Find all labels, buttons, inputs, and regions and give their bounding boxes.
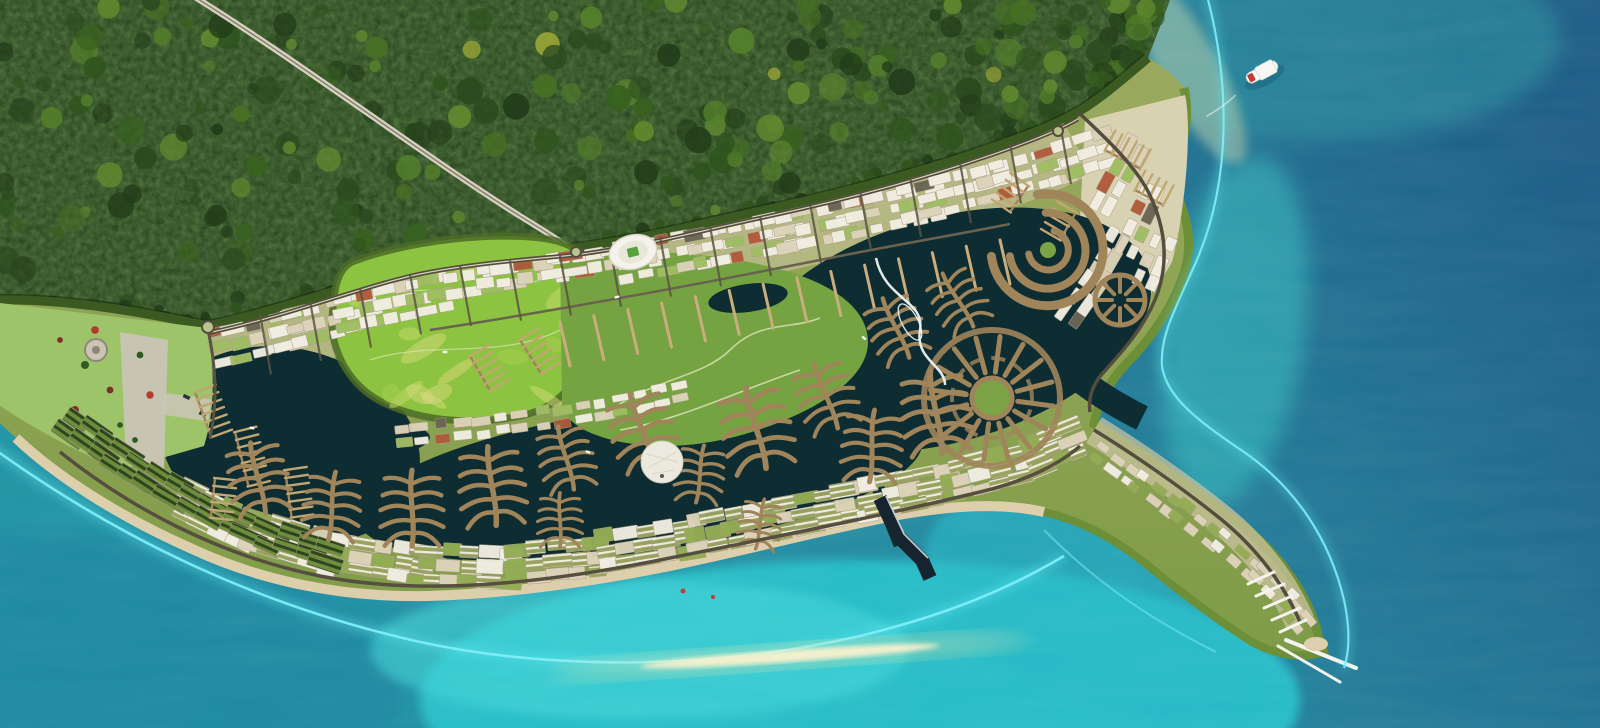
- tree: [190, 195, 201, 206]
- tree: [369, 60, 381, 72]
- tree: [13, 77, 24, 88]
- tree: [974, 104, 1002, 132]
- mid-block: [537, 422, 551, 431]
- tree: [93, 103, 113, 123]
- small-boat: [443, 351, 448, 353]
- tree: [1, 187, 15, 201]
- tree: [247, 83, 258, 94]
- tree: [433, 76, 448, 91]
- tree: [634, 160, 658, 184]
- tree: [940, 16, 961, 37]
- tree: [927, 90, 949, 112]
- tree: [578, 136, 602, 160]
- tree: [231, 178, 250, 197]
- tree: [975, 38, 992, 55]
- beachfront-block: [436, 559, 461, 572]
- beachfront-block: [653, 519, 674, 536]
- tree: [798, 5, 821, 28]
- north-block: [496, 277, 511, 288]
- tree: [176, 125, 193, 142]
- tree: [196, 103, 207, 114]
- mid-block: [536, 404, 551, 415]
- tree: [660, 176, 676, 192]
- tree: [9, 97, 34, 122]
- beachfront-block: [636, 524, 656, 538]
- mid-block: [414, 436, 429, 445]
- mid-block: [494, 412, 507, 422]
- tree: [811, 134, 831, 154]
- tree: [52, 227, 63, 238]
- tree: [366, 37, 388, 59]
- tree: [223, 248, 246, 271]
- tree: [1069, 35, 1083, 49]
- tree: [182, 18, 192, 28]
- tree: [204, 211, 220, 227]
- tree: [786, 12, 796, 22]
- north-block: [693, 255, 708, 268]
- tree: [178, 243, 198, 263]
- tree: [816, 38, 827, 49]
- tree: [929, 9, 941, 21]
- tree: [1040, 89, 1055, 104]
- mid-block: [435, 434, 450, 444]
- tree: [211, 124, 223, 136]
- tree: [710, 205, 720, 215]
- north-block: [445, 288, 463, 301]
- tree: [542, 45, 567, 70]
- mid-block: [496, 424, 511, 435]
- tree: [352, 238, 366, 252]
- tree: [283, 141, 296, 154]
- tree: [448, 105, 471, 128]
- tree: [287, 170, 301, 184]
- tree: [598, 40, 611, 53]
- tree: [503, 93, 530, 120]
- tree: [728, 28, 754, 54]
- tree: [768, 68, 781, 81]
- mid-block: [435, 418, 447, 429]
- beach-red-marker: [711, 595, 715, 599]
- tree: [930, 52, 947, 69]
- tree: [347, 65, 364, 82]
- tree: [770, 140, 793, 163]
- tree: [955, 112, 967, 124]
- attraction-dot: [81, 361, 89, 369]
- tree: [1069, 4, 1087, 22]
- beach-red-marker: [681, 589, 686, 594]
- tree: [236, 224, 253, 241]
- tree: [548, 11, 559, 22]
- masterplan-svg: [0, 0, 1600, 728]
- mid-block: [453, 430, 472, 441]
- north-block: [427, 288, 443, 300]
- tree: [316, 147, 341, 172]
- beachfront-block: [459, 545, 478, 558]
- tree: [1086, 71, 1099, 84]
- tree: [36, 76, 51, 91]
- tree: [568, 30, 587, 49]
- mid-block: [476, 429, 491, 440]
- north-block: [517, 271, 534, 285]
- attraction-dot: [137, 352, 144, 359]
- north-block: [730, 251, 744, 264]
- attraction-dot: [57, 337, 63, 343]
- tree: [425, 164, 441, 180]
- tree: [1086, 39, 1113, 66]
- tree: [877, 101, 887, 111]
- masterplan-aerial-image: [0, 0, 1600, 728]
- tree: [882, 61, 893, 72]
- tree: [396, 184, 412, 200]
- tree: [657, 44, 680, 67]
- tree: [839, 53, 862, 76]
- tree: [221, 226, 234, 239]
- tree: [986, 67, 1002, 83]
- tree: [792, 60, 804, 72]
- tree: [819, 73, 847, 101]
- tree: [716, 133, 735, 152]
- attraction-dot: [107, 387, 114, 394]
- mid-block: [593, 398, 606, 409]
- tree: [864, 90, 878, 104]
- tree: [97, 162, 123, 188]
- tree: [463, 41, 481, 59]
- tree: [676, 119, 699, 142]
- tree: [829, 122, 848, 141]
- mid-block: [511, 422, 528, 433]
- north-block: [442, 272, 458, 284]
- tree: [11, 218, 24, 231]
- tree: [628, 76, 652, 100]
- mid-block: [453, 417, 473, 428]
- tree: [58, 205, 85, 232]
- tree: [1056, 25, 1071, 40]
- attraction-dot: [146, 391, 153, 398]
- tree: [1109, 13, 1120, 24]
- tree: [273, 13, 296, 36]
- tree: [153, 27, 171, 45]
- attraction-dot: [132, 437, 138, 443]
- tree: [337, 178, 360, 201]
- tree: [1048, 39, 1059, 50]
- tree: [531, 179, 558, 206]
- tree: [583, 186, 596, 199]
- tree: [117, 118, 144, 145]
- carousel-hub: [92, 346, 100, 354]
- tree: [456, 78, 483, 105]
- beachfront-block: [443, 543, 462, 556]
- tree: [452, 211, 465, 224]
- tree: [634, 121, 654, 141]
- attraction-dot: [117, 422, 123, 428]
- tree: [788, 82, 810, 104]
- tree: [359, 209, 373, 223]
- treeline-tree: [231, 302, 242, 313]
- tail-sand-tip: [1304, 637, 1328, 651]
- tree: [185, 179, 198, 192]
- tree: [670, 195, 682, 207]
- mid-block: [394, 425, 409, 435]
- tree: [534, 129, 558, 153]
- tree: [1016, 48, 1040, 72]
- tree: [890, 118, 914, 142]
- tree: [561, 83, 581, 103]
- tree: [315, 3, 328, 16]
- roundabout-west: [202, 321, 214, 333]
- tree: [396, 155, 421, 180]
- tree: [699, 23, 710, 34]
- tree: [634, 98, 653, 117]
- tree: [134, 147, 156, 169]
- tree: [574, 180, 585, 191]
- attraction-dot: [91, 326, 99, 334]
- north-block: [476, 276, 495, 289]
- tree: [703, 101, 727, 125]
- disc-mooring: [660, 474, 664, 478]
- tree: [356, 30, 368, 42]
- circular-floating-platform: [641, 441, 683, 483]
- tree: [725, 108, 746, 129]
- mid-block: [396, 437, 413, 448]
- tree: [1043, 50, 1066, 73]
- north-block: [587, 260, 603, 273]
- tree: [286, 39, 297, 50]
- beachfront-block: [476, 559, 504, 575]
- tree: [482, 133, 506, 157]
- roundabout-head: [1053, 126, 1063, 136]
- beachfront-block: [542, 553, 572, 568]
- tree: [762, 160, 783, 181]
- tree: [888, 68, 915, 95]
- tree: [936, 123, 963, 150]
- tree: [134, 33, 150, 49]
- roundabout-center: [571, 247, 581, 257]
- north-block: [383, 311, 399, 325]
- tree: [41, 107, 63, 129]
- tree: [66, 13, 85, 32]
- tree: [469, 8, 492, 31]
- tree: [1002, 86, 1019, 103]
- tree: [756, 114, 784, 142]
- tree: [773, 180, 788, 195]
- tree: [84, 57, 106, 79]
- tree: [332, 199, 359, 226]
- tree: [81, 95, 93, 107]
- tree: [606, 85, 631, 110]
- tree: [1010, 0, 1036, 25]
- tree: [994, 29, 1004, 39]
- tree: [233, 105, 250, 122]
- tree: [427, 120, 452, 145]
- tree: [204, 60, 216, 72]
- tree: [533, 74, 557, 98]
- beachfront-block: [593, 527, 614, 544]
- beachfront-block: [525, 539, 546, 554]
- tree: [843, 19, 863, 39]
- tree: [1125, 14, 1152, 41]
- tree: [246, 155, 267, 176]
- tree: [123, 184, 142, 203]
- tree: [580, 7, 602, 29]
- tree: [787, 38, 810, 61]
- tree: [324, 66, 341, 83]
- north-block: [831, 230, 846, 244]
- mid-block: [409, 422, 429, 432]
- tree: [693, 163, 711, 181]
